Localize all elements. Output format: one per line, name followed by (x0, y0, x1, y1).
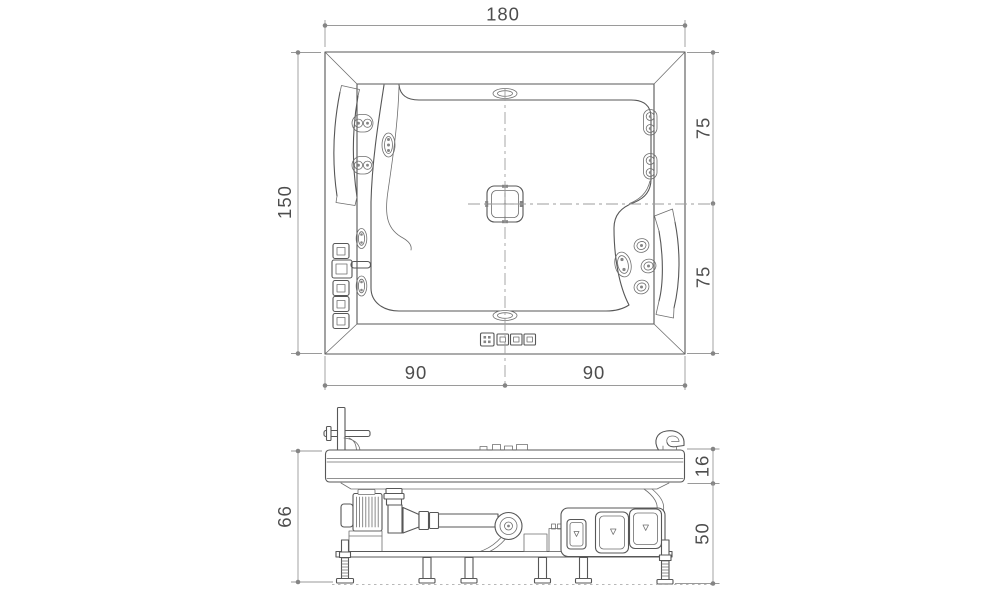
hydro-jet-left-seat (382, 133, 395, 157)
dimension-height-150: 150 (274, 50, 322, 356)
dimension-side-66: 66 (274, 449, 333, 585)
bathtub-drawing: 180 150 75 75 90 90 (0, 0, 1000, 600)
dim-label-90-left: 90 (405, 362, 428, 383)
side-view: 66 16 50 (274, 408, 720, 586)
dimension-side-16: 16 (687, 447, 720, 486)
mixer-lever (351, 262, 371, 269)
dim-label-90-right: 90 (583, 362, 606, 383)
right-headrest (655, 209, 680, 318)
dim-label-50: 50 (692, 522, 713, 545)
plan-view: 180 150 75 75 90 90 (274, 4, 719, 391)
handshower-hook (656, 431, 684, 450)
dimension-right-75-lower: 75 (687, 204, 719, 356)
dimension-width-180: 180 (323, 4, 688, 48)
rim-profile (326, 450, 685, 482)
hydro-jets-right-seat (613, 237, 658, 296)
pump-base (349, 531, 382, 552)
left-headrest (334, 86, 360, 206)
dim-label-75-lower: 75 (693, 266, 714, 289)
dim-label-150: 150 (274, 185, 295, 219)
dim-label-75-upper: 75 (693, 117, 714, 140)
centerlines (468, 89, 713, 387)
dim-label-16: 16 (692, 455, 713, 478)
hydro-jet-left-wall-upper (356, 229, 367, 249)
junction-boxes (524, 524, 563, 552)
keypad-icon (481, 333, 495, 346)
hydro-jet-twin-right-lower (644, 154, 658, 180)
deck-faucet (324, 408, 370, 451)
dimension-right-75-upper: 75 (687, 50, 719, 206)
control-panel (481, 333, 536, 346)
dim-label-66: 66 (274, 505, 295, 528)
pump-assembly (341, 489, 522, 558)
hydro-jet-left-wall-lower (356, 276, 367, 296)
hydro-jet-twin-left-lower (352, 157, 373, 175)
technical-drawing-canvas: 180 150 75 75 90 90 (0, 0, 1000, 600)
rim-top-buttons (480, 445, 528, 451)
equipment-panel (561, 489, 665, 557)
dimension-side-50: 50 (675, 484, 720, 586)
dim-label-180: 180 (486, 4, 520, 25)
